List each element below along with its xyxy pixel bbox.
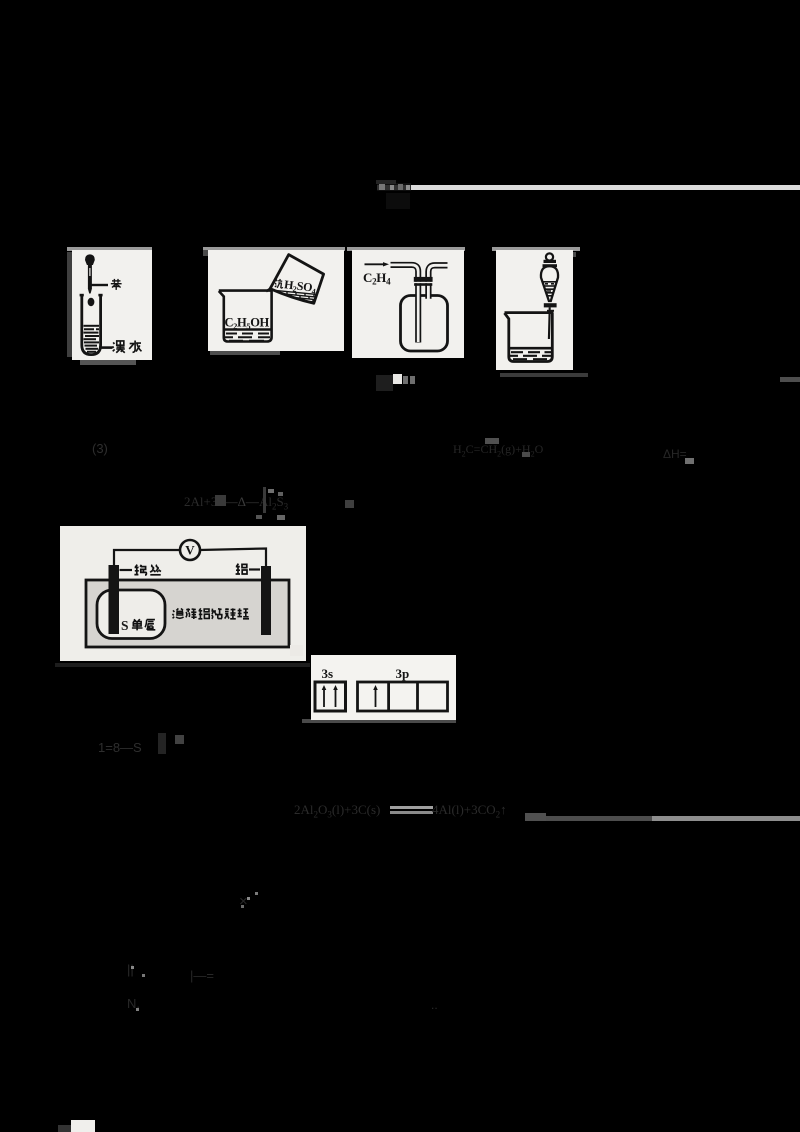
svg-text:3p: 3p <box>396 666 410 681</box>
svg-text:3s: 3s <box>322 666 334 681</box>
svg-text:V: V <box>185 543 195 558</box>
svg-text:S: S <box>121 618 129 633</box>
svg-text:C2H4: C2H4 <box>363 270 391 287</box>
